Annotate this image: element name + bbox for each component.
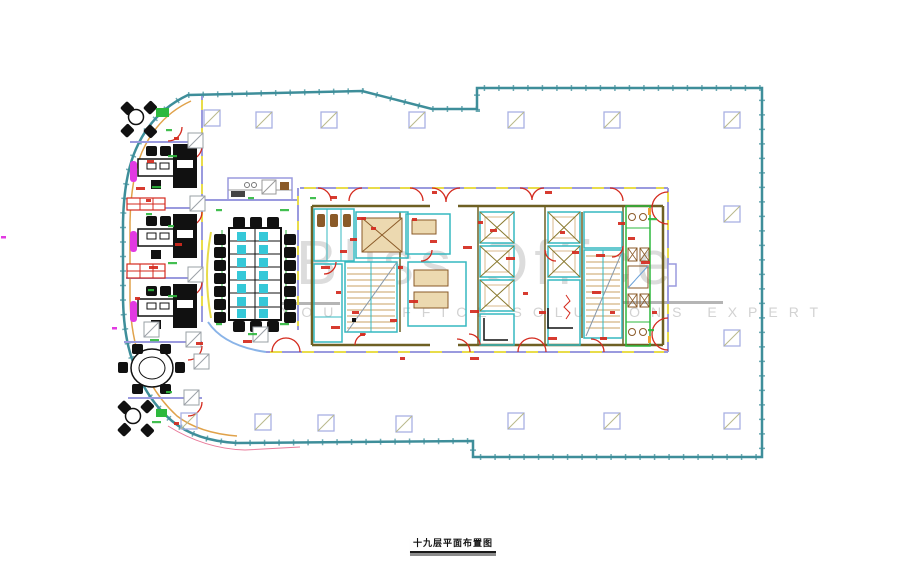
toilet-icon bbox=[317, 214, 325, 227]
plant-icon bbox=[130, 301, 137, 322]
core-right-stair bbox=[584, 212, 622, 338]
plant-icon bbox=[130, 161, 137, 182]
cad-viewport: Bliss Office YOUR OFFICE SOLUTIONS EXPER… bbox=[0, 0, 906, 571]
text-annotation bbox=[390, 319, 397, 322]
text-annotation bbox=[149, 266, 158, 269]
dimension-text bbox=[216, 209, 222, 211]
text-annotation bbox=[331, 326, 340, 329]
column-marker bbox=[188, 133, 203, 148]
floor-plan-drawing bbox=[0, 0, 906, 571]
text-annotation bbox=[400, 357, 405, 360]
dimension-text bbox=[166, 129, 172, 131]
column-marker bbox=[724, 206, 740, 222]
dimension-text bbox=[648, 329, 654, 331]
oval-table bbox=[131, 349, 173, 387]
text-annotation bbox=[560, 231, 565, 234]
text-annotation bbox=[330, 196, 337, 199]
dimension-text bbox=[166, 391, 172, 393]
text-annotation bbox=[147, 160, 154, 163]
column-marker bbox=[188, 267, 203, 282]
text-annotation bbox=[360, 333, 365, 336]
marker bbox=[1, 236, 6, 239]
text-annotation bbox=[146, 199, 151, 202]
column-marker bbox=[724, 413, 740, 429]
marker bbox=[112, 327, 117, 330]
sink-icon bbox=[629, 214, 636, 221]
text-annotation bbox=[600, 337, 607, 340]
appliance-icon bbox=[280, 182, 289, 190]
meeting-room bbox=[118, 344, 185, 394]
column-marker bbox=[144, 322, 159, 337]
dimension-text bbox=[168, 225, 174, 227]
text-annotation bbox=[523, 292, 528, 295]
column-marker bbox=[255, 414, 271, 430]
text-annotation bbox=[463, 246, 472, 249]
column-marker bbox=[409, 112, 425, 128]
toilet-icon bbox=[343, 214, 351, 227]
text-annotation bbox=[398, 266, 403, 269]
dimension-text bbox=[216, 323, 222, 325]
text-annotation bbox=[135, 297, 140, 300]
dimension-text bbox=[168, 155, 177, 157]
text-annotation bbox=[175, 243, 182, 246]
text-annotation bbox=[539, 311, 546, 314]
text-annotation bbox=[592, 291, 601, 294]
sink-icon bbox=[640, 214, 647, 221]
column-marker bbox=[321, 112, 337, 128]
column-marker bbox=[256, 112, 272, 128]
dimension-text bbox=[310, 197, 316, 199]
text-annotation bbox=[430, 240, 437, 243]
text-annotation bbox=[174, 422, 179, 425]
column-marker bbox=[184, 390, 199, 405]
dimension-text bbox=[248, 197, 254, 199]
text-annotation bbox=[596, 254, 605, 257]
core-left-block bbox=[314, 209, 408, 342]
core-mid-block bbox=[406, 214, 466, 326]
column-marker bbox=[204, 110, 220, 126]
text-annotation bbox=[470, 310, 479, 313]
column-marker bbox=[396, 416, 412, 432]
column-marker bbox=[190, 196, 205, 211]
sink-icon bbox=[245, 183, 250, 188]
text-annotation bbox=[174, 137, 179, 140]
text-annotation bbox=[412, 218, 417, 221]
drawing-title: 十九层平面布置图 bbox=[410, 536, 496, 553]
dimension-text bbox=[168, 262, 177, 264]
text-annotation bbox=[409, 300, 418, 303]
plant-icon bbox=[130, 231, 137, 252]
dimension-text bbox=[280, 323, 289, 325]
column-marker bbox=[194, 354, 209, 369]
dimension-text bbox=[150, 339, 159, 341]
toilet-icon bbox=[330, 214, 338, 227]
text-annotation bbox=[321, 266, 330, 269]
dimension-text bbox=[148, 289, 154, 291]
text-annotation bbox=[357, 217, 366, 220]
core-restroom-right bbox=[626, 206, 651, 346]
text-annotation bbox=[652, 311, 657, 314]
office-room-6 bbox=[117, 399, 167, 438]
dimension-text bbox=[146, 213, 152, 215]
text-annotation bbox=[196, 342, 203, 345]
dimension-text bbox=[280, 209, 289, 211]
text-annotation bbox=[490, 229, 497, 232]
text-annotation bbox=[628, 237, 635, 240]
text-annotation bbox=[641, 261, 650, 264]
text-annotation bbox=[350, 238, 357, 241]
text-annotation bbox=[545, 191, 552, 194]
text-annotation bbox=[371, 227, 376, 230]
text-annotation bbox=[470, 357, 479, 360]
text-annotation bbox=[548, 337, 557, 340]
sink-icon bbox=[252, 183, 257, 188]
text-annotation bbox=[506, 257, 515, 260]
column-marker bbox=[604, 112, 620, 128]
dimension-text bbox=[648, 218, 657, 220]
dimension-text bbox=[152, 421, 161, 423]
dimension-text bbox=[248, 333, 257, 335]
dimension-text bbox=[168, 295, 177, 297]
column-marker bbox=[508, 112, 524, 128]
column-marker bbox=[318, 415, 334, 431]
text-annotation bbox=[432, 191, 437, 194]
pantry bbox=[228, 178, 292, 200]
dimension-text bbox=[152, 186, 161, 188]
magenta-marks bbox=[1, 236, 117, 330]
text-annotation bbox=[618, 222, 625, 225]
column-marker bbox=[724, 112, 740, 128]
text-annotation bbox=[352, 311, 359, 314]
text-annotation bbox=[340, 250, 347, 253]
text-annotation bbox=[610, 311, 615, 314]
text-annotation bbox=[336, 291, 341, 294]
column-marker bbox=[604, 413, 620, 429]
text-annotation bbox=[243, 340, 252, 343]
desk-offices bbox=[127, 144, 197, 329]
column-marker bbox=[508, 413, 524, 429]
wall-recess bbox=[668, 264, 676, 286]
text-annotation bbox=[572, 251, 579, 254]
text-annotation bbox=[136, 187, 145, 190]
text-annotation bbox=[478, 221, 483, 224]
column-marker bbox=[724, 330, 740, 346]
